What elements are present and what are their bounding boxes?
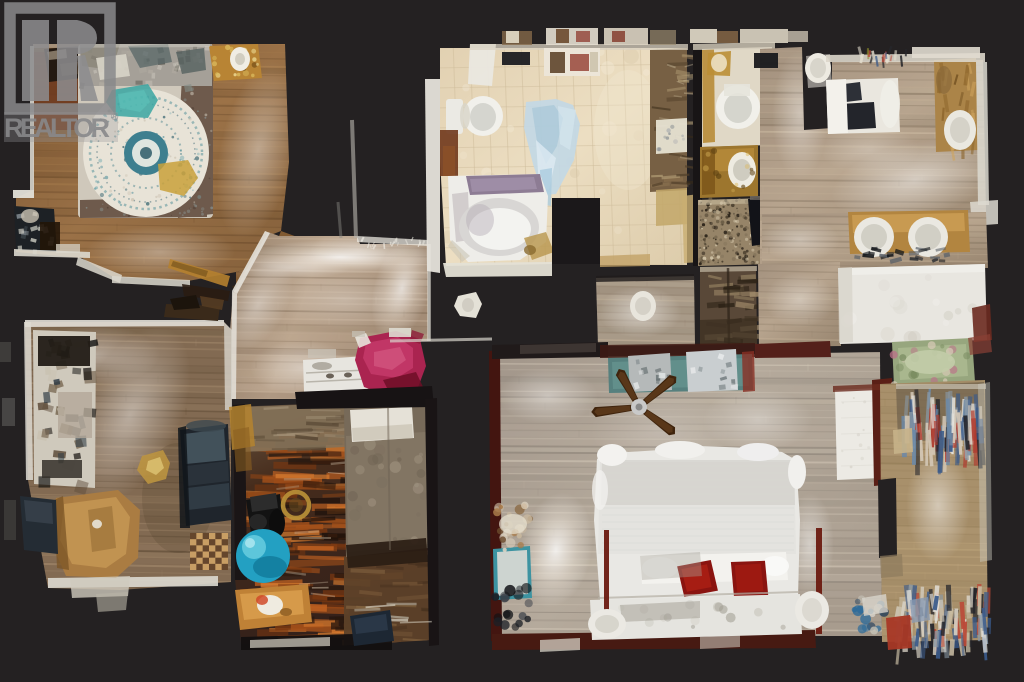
svg-text:REALTOR: REALTOR <box>4 113 110 143</box>
svg-text:®: ® <box>111 112 119 123</box>
